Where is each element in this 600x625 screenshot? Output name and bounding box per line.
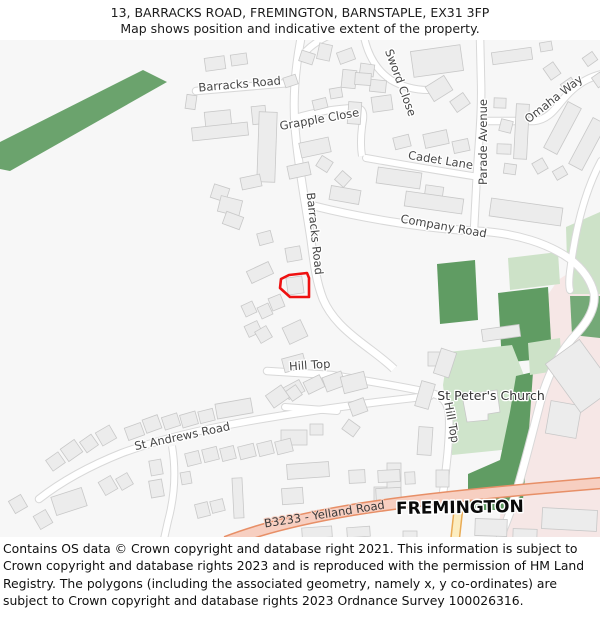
building (499, 119, 514, 134)
building (185, 94, 197, 109)
building (257, 230, 274, 245)
building (116, 473, 134, 491)
building (497, 144, 511, 154)
building (532, 158, 548, 174)
building (393, 134, 411, 150)
building (285, 246, 302, 262)
building (220, 445, 237, 461)
building (310, 424, 323, 435)
building (238, 443, 257, 459)
building (329, 87, 343, 99)
building (491, 47, 532, 64)
building (287, 462, 330, 480)
building (423, 130, 449, 149)
building (378, 469, 401, 482)
building (275, 438, 294, 454)
building (403, 531, 417, 537)
building (513, 529, 537, 537)
building (51, 488, 87, 516)
building (46, 452, 66, 471)
building (286, 276, 304, 295)
building (142, 415, 162, 434)
building (230, 53, 247, 66)
building (241, 301, 257, 317)
building (33, 510, 53, 530)
map-subtitle: Map shows position and indicative extent… (0, 21, 600, 37)
building (316, 43, 332, 61)
building (204, 56, 226, 72)
building (180, 471, 192, 485)
building (194, 502, 210, 519)
building (215, 398, 253, 419)
building (543, 62, 561, 80)
building (415, 381, 436, 410)
footer-copyright: Contains OS data © Crown copyright and d… (0, 538, 600, 610)
building (450, 93, 471, 113)
building (232, 478, 244, 518)
building (405, 472, 416, 485)
building (329, 186, 361, 205)
building (222, 211, 243, 229)
building (316, 155, 333, 172)
building (98, 476, 118, 496)
map-container: Barracks Road Sword Close Grapple Close … (0, 40, 600, 537)
building (336, 48, 355, 65)
building (347, 526, 371, 537)
map-canvas: Barracks Road Sword Close Grapple Close … (0, 40, 600, 537)
map-title: 13, BARRACKS ROAD, FREMINGTON, BARNSTAPL… (0, 0, 600, 21)
road-label-parade-avenue: Parade Avenue (476, 99, 490, 185)
building (185, 450, 202, 466)
poi-label-st-peters-church: St Peter's Church (437, 388, 544, 403)
building (210, 499, 226, 514)
building (95, 425, 116, 446)
building (191, 122, 248, 141)
building (246, 262, 273, 284)
building (202, 446, 220, 462)
building (287, 162, 311, 179)
building (582, 51, 598, 66)
building (257, 440, 275, 456)
building (198, 408, 215, 423)
building (425, 75, 453, 101)
green-area (437, 260, 478, 324)
building (489, 198, 563, 226)
building (342, 419, 360, 437)
building (569, 118, 600, 171)
building (436, 470, 449, 487)
road-label-b3233-yelland-road: B3233 - Yelland Road (263, 498, 385, 531)
building (161, 413, 180, 430)
building (302, 526, 333, 537)
building (149, 479, 165, 498)
building (410, 45, 463, 78)
building (349, 470, 366, 484)
building (552, 166, 567, 181)
building (475, 518, 508, 536)
building (281, 487, 303, 504)
building (341, 69, 357, 88)
building (452, 138, 470, 153)
building (503, 163, 516, 175)
building (335, 171, 352, 188)
building (299, 137, 331, 158)
page-header: 13, BARRACKS ROAD, FREMINGTON, BARNSTAPL… (0, 0, 600, 40)
road (164, 446, 174, 537)
building (8, 494, 27, 513)
place-label-fremington: FREMINGTON (396, 497, 524, 519)
building (369, 79, 386, 93)
building (240, 174, 262, 190)
building (60, 439, 83, 461)
building (541, 508, 597, 532)
building (355, 72, 372, 85)
building (80, 434, 99, 453)
road-label-hill-top: Hill Top (289, 357, 331, 374)
building (282, 320, 308, 345)
building (149, 459, 163, 476)
green-area (0, 70, 167, 171)
building (371, 95, 393, 113)
building (257, 112, 277, 183)
building (494, 98, 506, 108)
building (417, 427, 433, 456)
building (539, 41, 552, 52)
green-area (508, 252, 560, 290)
